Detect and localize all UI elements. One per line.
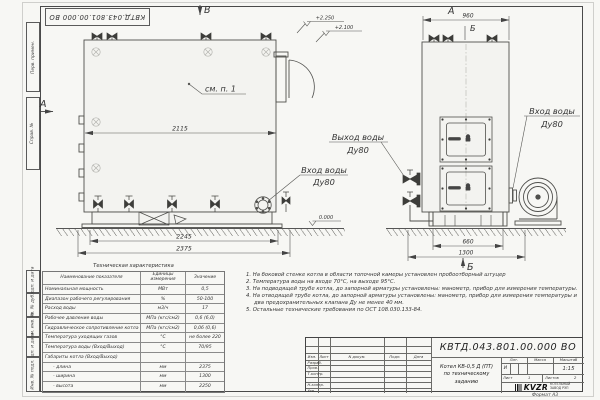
table-row: - ширинамм1300 — [43, 372, 224, 382]
table-row: Гидравлическое сопротивление котлаМПа (к… — [43, 324, 224, 334]
view-letter-v: В — [204, 5, 211, 16]
dim-1300: 1300 — [459, 251, 474, 257]
drawing-sheet: Перв. примен. Справ. № Подп. и дата Инв.… — [0, 0, 600, 400]
valve-icon — [403, 170, 420, 185]
valve-icon — [403, 192, 420, 207]
technical-notes: 1. На боковой стенке котла в области топ… — [246, 272, 582, 314]
front-inlet-size: Ду80 — [540, 119, 563, 129]
valve-icon — [107, 33, 117, 40]
tb-lit-header: Лит. — [501, 358, 527, 362]
dim-2375: 2375 — [176, 246, 192, 253]
drawing-code: КВТД.043.801.00.000 ВО — [432, 338, 584, 357]
tech-table-title: Техническая характеристика — [42, 263, 225, 269]
inlet-flange-front — [509, 188, 517, 203]
elevation-marks — [297, 22, 362, 226]
tb-sheets-label: Листов — [545, 376, 559, 380]
document-title: Котел КВ-0,5 Д (ПТ) по техническому зада… — [432, 357, 501, 393]
col-header: Единицы измерения — [141, 272, 186, 285]
tb-row-utv: Утв. — [308, 389, 316, 393]
table-row: Температура уходящих газов°Сне более 220 — [43, 333, 224, 343]
dim-2115: 2115 — [172, 126, 188, 133]
valve-icon — [487, 35, 497, 42]
tb-scale-value: 1:15 — [553, 366, 584, 372]
table-row: Расход водым3/ч17 — [43, 304, 224, 314]
door-handle — [449, 187, 461, 190]
logo-emblem-icon — [515, 384, 522, 391]
side-view — [56, 40, 344, 229]
elev-0000: 0.000 — [319, 215, 333, 221]
col-header: Наименование показателя — [43, 272, 141, 285]
tb-massa-header: Масса — [527, 358, 553, 362]
tb-col-data: Дата — [406, 355, 431, 359]
note-item: 3. На подводящей трубе котла, до запорно… — [246, 286, 582, 293]
skid-rail — [82, 224, 282, 228]
note-item: 5. Остальные технические требования по О… — [246, 307, 582, 314]
table-row: Рабочее давление водыМПа (кгс/см2)0,6 (6… — [43, 314, 224, 324]
tb-scale-header: Масштаб — [553, 358, 584, 362]
tb-row-nkontr: Н.контр. — [308, 383, 325, 387]
tb-col-podp: Подп. — [384, 355, 406, 359]
elev-2100: +2.100 — [335, 25, 354, 31]
col-header: Значение — [186, 272, 224, 285]
valve-icon — [261, 33, 271, 40]
table-row: Номинальная мощностьМВт0,5 — [43, 285, 224, 295]
note-item: 2. Температура воды на входе 70°С, на вы… — [246, 279, 582, 286]
note-ref-text: см. п. 1 — [205, 85, 236, 94]
title-block: Изм. Лист N докум. Подп. Дата Разраб. Пр… — [305, 337, 583, 392]
front-inlet-label: Вход воды — [529, 106, 575, 116]
table-row: - высотамм2250 — [43, 382, 224, 392]
tb-col-izm: Изм. — [306, 355, 318, 359]
dim-960: 960 — [462, 14, 473, 20]
note-item: 1. На боковой стенке котла в области топ… — [246, 272, 582, 279]
tb-sheets-num: 2 — [574, 376, 576, 380]
company-logo: KVZR КОТЕЛЬНЫЙ ЗАВОД РЭП — [502, 382, 583, 393]
format-label: Формат А3 — [532, 393, 558, 398]
tech-table: Наименование показателя Единицы измерени… — [42, 271, 225, 393]
doc-title-line2: по техническому заданию — [432, 371, 501, 386]
valve-icon — [92, 33, 102, 40]
logo-text: KVZR — [524, 383, 548, 392]
elev-2250: +2.250 — [316, 16, 335, 22]
valve-icon — [443, 35, 453, 42]
tb-row-prov: Пров. — [308, 366, 319, 370]
view-letter-a-front: А — [447, 6, 455, 17]
valve-icon — [282, 192, 290, 212]
front-outlet-size: Ду80 — [346, 145, 369, 155]
base-frame-front — [433, 212, 503, 226]
tb-sheet-num: 1 — [528, 376, 530, 380]
boiler-body-front — [422, 42, 509, 212]
doc-title-line1: Котел КВ-0,5 Д (ПТ) — [440, 364, 493, 372]
valve-icon — [429, 35, 439, 42]
side-wall-tabs — [79, 116, 84, 201]
flue-duct — [274, 52, 314, 102]
tb-row-razrab: Разраб. — [308, 361, 323, 365]
front-outlet-label: Выход воды — [332, 132, 385, 142]
valve-icon — [201, 33, 211, 40]
table-row: Диапазон рабочего регулирования%50-100 — [43, 295, 224, 305]
table-row: - длинамм2375 — [43, 363, 224, 373]
org-name: КОТЕЛЬНЫЙ ЗАВОД РЭП — [550, 383, 570, 391]
tb-col-list: Лист — [318, 355, 330, 359]
note-item: 4. На отводящей трубе котла, до запорной… — [246, 293, 582, 307]
side-inlet-label: Вход воды — [301, 165, 347, 175]
tech-table-header: Наименование показателя Единицы измерени… — [43, 272, 224, 285]
tb-col-ndoc: N докум. — [330, 355, 384, 359]
side-top-valves — [92, 33, 271, 40]
view-letter-a-side: А — [39, 99, 47, 110]
dim-2245: 2245 — [176, 234, 192, 241]
dim-660: 660 — [462, 240, 473, 246]
blower-fan — [515, 178, 561, 225]
table-row: Габариты котла (Вход/Выход) — [43, 353, 224, 363]
door-handle — [449, 138, 461, 141]
side-inlet-size: Ду80 — [312, 177, 335, 187]
view-letter-b-top: Б — [470, 24, 476, 33]
door-lock-icon — [466, 134, 471, 141]
table-row: Температура воды (Вход/Выход)°С70/95 — [43, 343, 224, 353]
tb-lit-value: И — [501, 366, 510, 371]
tb-sheet-label: Лист — [503, 376, 512, 380]
door-lock-icon — [466, 183, 471, 190]
tb-row-tkontr: Т.контр. — [308, 372, 324, 376]
